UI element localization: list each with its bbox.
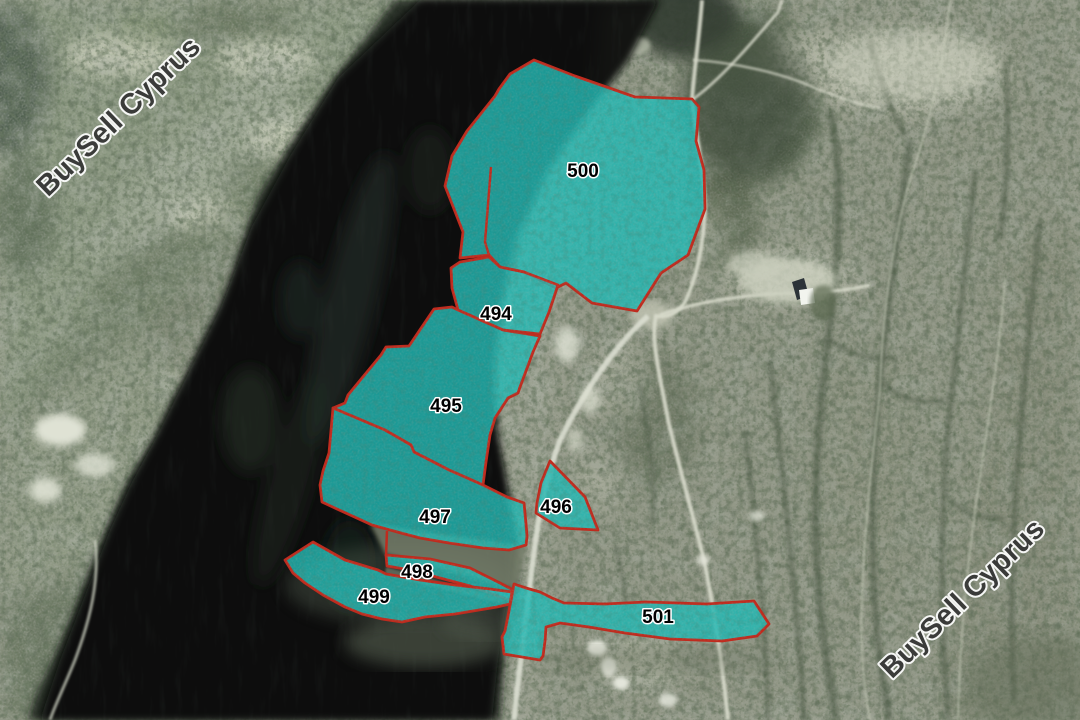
svg-text:495: 495 <box>430 396 462 417</box>
svg-text:496: 496 <box>540 497 572 518</box>
svg-text:501: 501 <box>642 607 674 628</box>
svg-text:498: 498 <box>401 562 433 583</box>
svg-text:494: 494 <box>480 304 512 325</box>
svg-text:500: 500 <box>567 161 599 182</box>
svg-text:499: 499 <box>358 587 390 608</box>
svg-text:497: 497 <box>419 507 451 528</box>
